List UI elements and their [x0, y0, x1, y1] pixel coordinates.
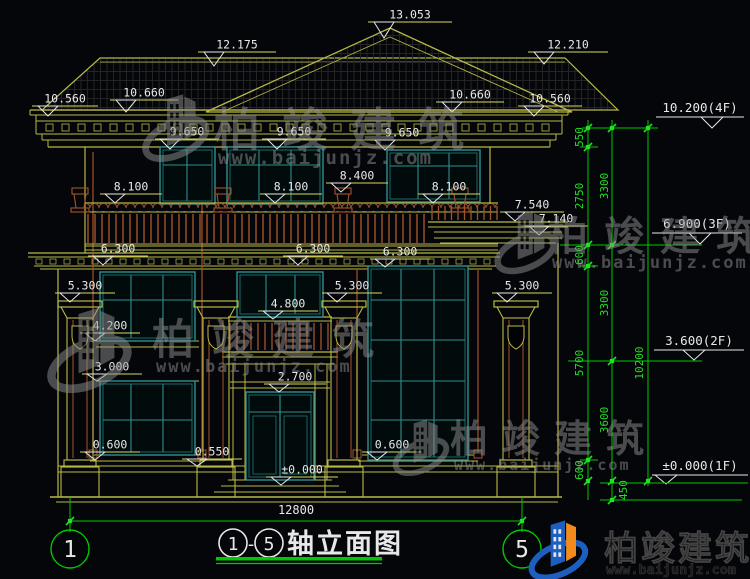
axis-number: 1 [63, 537, 77, 563]
level-label: 8.400 [340, 169, 375, 183]
level-label: 6.300 [383, 245, 418, 259]
level-marker: 8.100 [100, 180, 162, 204]
title-axis-start: 1 [228, 534, 239, 555]
dim-label: 10200 [633, 346, 646, 379]
dim-label: 550 [573, 127, 586, 147]
level-label: 0.550 [195, 445, 230, 459]
brand-logo-block: 柏竣建筑www.baijunjz.com [526, 521, 750, 579]
level-label: 7.540 [515, 198, 550, 212]
elevation-drawing: 13.05312.17512.21010.56010.66010.66010.5… [0, 0, 750, 579]
dim-label: 5700 [573, 350, 586, 377]
level-label: 13.053 [389, 8, 431, 22]
level-label: 6.300 [101, 242, 136, 256]
level-label: 12.175 [216, 38, 258, 52]
level-marker: 13.053 [368, 8, 452, 39]
level-label: 8.100 [114, 180, 149, 194]
axis-bubble: 1 [51, 530, 89, 568]
dim-label: 3300 [598, 173, 611, 200]
level-label: 10.560 [44, 92, 86, 106]
floor-level-label: 10.200(4F) [662, 100, 737, 115]
level-label: 12.210 [547, 38, 589, 52]
floor-level-label: 3.600(2F) [665, 333, 733, 348]
level-label: 6.300 [296, 242, 331, 256]
drawing-title-block: 1-5轴立面图 [216, 528, 403, 564]
baijun-logo [526, 521, 590, 579]
level-label: 10.660 [449, 88, 491, 102]
dim-label: 3300 [598, 290, 611, 317]
watermark-bottom: 柏竣建筑www.baijunjz.com [391, 419, 658, 480]
title-axis-end: 5 [264, 534, 275, 555]
urn-finial [334, 188, 352, 212]
watermark-brand: 柏竣建筑 [152, 316, 392, 363]
cad-viewport: 13.05312.17512.21010.56010.66010.66010.5… [0, 0, 750, 579]
level-label: 10.560 [529, 92, 571, 106]
level-label: 5.300 [505, 279, 540, 293]
floor-level-label: ±0.000(1F) [662, 458, 737, 473]
level-label: 8.100 [432, 180, 467, 194]
level-label: 5.300 [335, 279, 370, 293]
brand-url: www.baijunjz.com [606, 562, 736, 578]
drawing-title: 轴立面图 [287, 528, 403, 559]
level-label: ±0.000 [281, 463, 323, 477]
axis-number: 5 [515, 537, 529, 563]
level-label: 5.300 [68, 279, 103, 293]
level-label: 0.600 [93, 438, 128, 452]
level-label: 4.800 [271, 297, 306, 311]
watermark-right: 柏竣建筑www.baijunjz.com [492, 211, 750, 279]
floor-level-marker: 3.600(2F) [568, 333, 744, 361]
watermark-url: www.baijunjz.com [218, 147, 433, 169]
dim-label: 2750 [573, 183, 586, 210]
dim-label: 450 [617, 480, 630, 500]
watermark-url: www.baijunjz.com [552, 253, 748, 273]
dim-label: 12800 [278, 503, 314, 517]
watermark-url: www.baijunjz.com [156, 357, 352, 377]
watermark-left: 柏竣建筑www.baijunjz.com [44, 308, 392, 399]
level-label: 8.100 [274, 180, 309, 194]
level-marker: 5.300 [492, 279, 552, 303]
level-label: 10.660 [123, 86, 165, 100]
urn-finial [71, 188, 89, 212]
watermark-url: www.baijunjz.com [454, 456, 631, 474]
watermark-brand: 柏竣建筑 [450, 419, 658, 461]
